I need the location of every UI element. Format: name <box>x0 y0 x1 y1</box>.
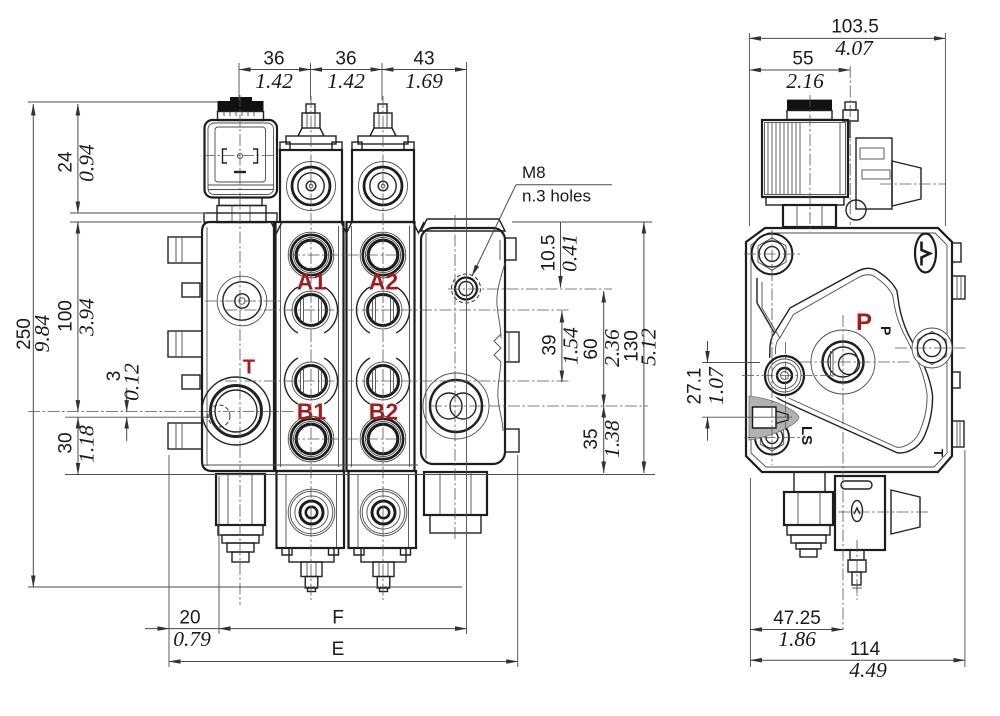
svg-text:20: 20 <box>179 607 200 628</box>
svg-text:1.38: 1.38 <box>600 420 624 458</box>
svg-text:1.42: 1.42 <box>327 69 365 93</box>
svg-text:5.12: 5.12 <box>637 328 661 366</box>
svg-text:1.86: 1.86 <box>778 627 816 651</box>
svg-text:T: T <box>243 357 255 379</box>
svg-text:n.3 holes: n.3 holes <box>522 187 591 206</box>
svg-text:0.41: 0.41 <box>558 234 582 272</box>
svg-text:2.16: 2.16 <box>786 69 824 93</box>
svg-text:0.79: 0.79 <box>173 627 211 651</box>
svg-text:24: 24 <box>55 151 76 173</box>
svg-text:103.5: 103.5 <box>831 17 879 38</box>
svg-text:39: 39 <box>539 334 560 355</box>
svg-text:0.94: 0.94 <box>74 144 98 182</box>
svg-text:4.07: 4.07 <box>835 36 874 60</box>
svg-text:B2: B2 <box>369 399 398 425</box>
svg-text:A1: A1 <box>297 269 327 295</box>
svg-text:P: P <box>878 326 894 335</box>
svg-text:T: T <box>931 449 946 457</box>
svg-text:27.1: 27.1 <box>685 368 706 405</box>
svg-text:114: 114 <box>850 639 881 660</box>
svg-text:3.94: 3.94 <box>74 298 98 337</box>
svg-text:P: P <box>856 309 872 336</box>
svg-text:36: 36 <box>263 49 284 70</box>
svg-text:0.12: 0.12 <box>120 363 144 401</box>
svg-text:100: 100 <box>55 300 76 332</box>
svg-text:30: 30 <box>56 432 77 453</box>
svg-text:M8: M8 <box>522 163 546 182</box>
svg-text:E: E <box>332 639 345 660</box>
svg-text:9.84: 9.84 <box>30 314 54 352</box>
svg-text:4.49: 4.49 <box>849 658 887 682</box>
svg-text:1.69: 1.69 <box>405 69 443 93</box>
svg-text:LS: LS <box>798 426 815 445</box>
svg-text:43: 43 <box>413 49 434 70</box>
svg-text:1.07: 1.07 <box>704 366 728 405</box>
svg-text:36: 36 <box>335 49 356 70</box>
svg-text:B1: B1 <box>297 399 327 425</box>
svg-text:1.18: 1.18 <box>75 425 99 463</box>
svg-text:60: 60 <box>581 338 602 359</box>
svg-text:55: 55 <box>792 48 813 69</box>
svg-text:10.5: 10.5 <box>539 235 560 272</box>
svg-text:F: F <box>332 607 344 628</box>
svg-text:A2: A2 <box>369 269 398 295</box>
svg-text:47.25: 47.25 <box>773 608 821 629</box>
svg-text:1.42: 1.42 <box>255 69 293 93</box>
svg-text:1.54: 1.54 <box>558 327 582 365</box>
svg-text:35: 35 <box>581 428 602 449</box>
